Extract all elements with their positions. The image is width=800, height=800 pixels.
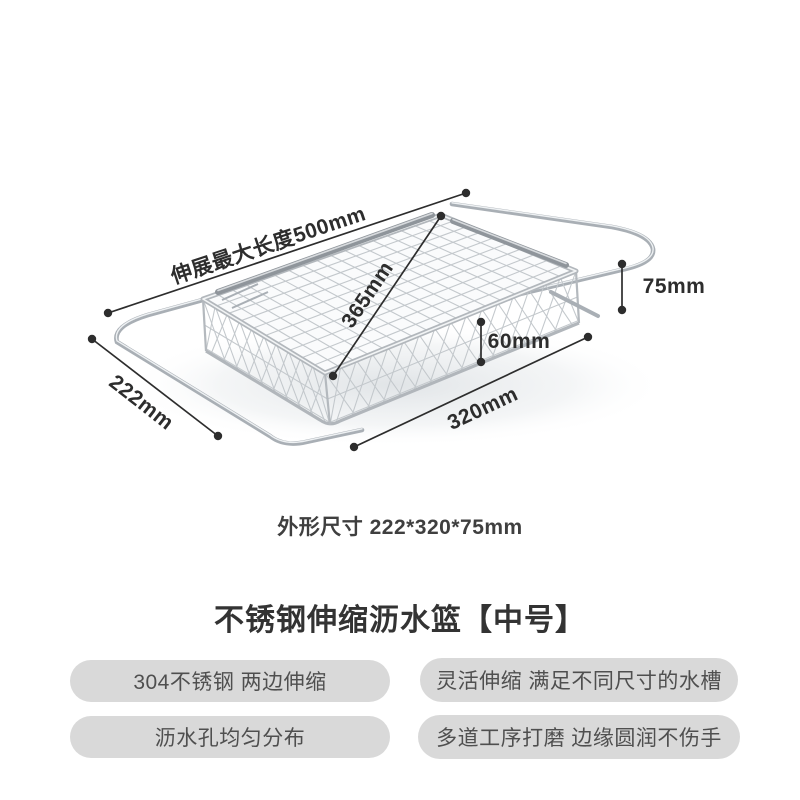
feature-pill-material: 304不锈钢 两边伸缩 [70,660,390,702]
dim-label-75mm: 75mm [643,275,706,299]
dim-label-60mm: 60mm [488,330,551,354]
outer-size-text: 外形尺寸 222*320*75mm [0,514,800,542]
feature-pill-polished: 多道工序打磨 边缘圆润不伤手 [418,715,740,759]
feature-pill-flexible: 灵活伸缩 满足不同尺寸的水槽 [420,658,738,702]
product-image: 伸展最大长度500mm 222mm 365mm 75mm 60mm 320mm … [0,0,800,800]
feature-pill-drain-holes: 沥水孔均匀分布 [70,716,390,758]
product-title: 不锈钢伸缩沥水篮【中号】 [0,600,800,642]
